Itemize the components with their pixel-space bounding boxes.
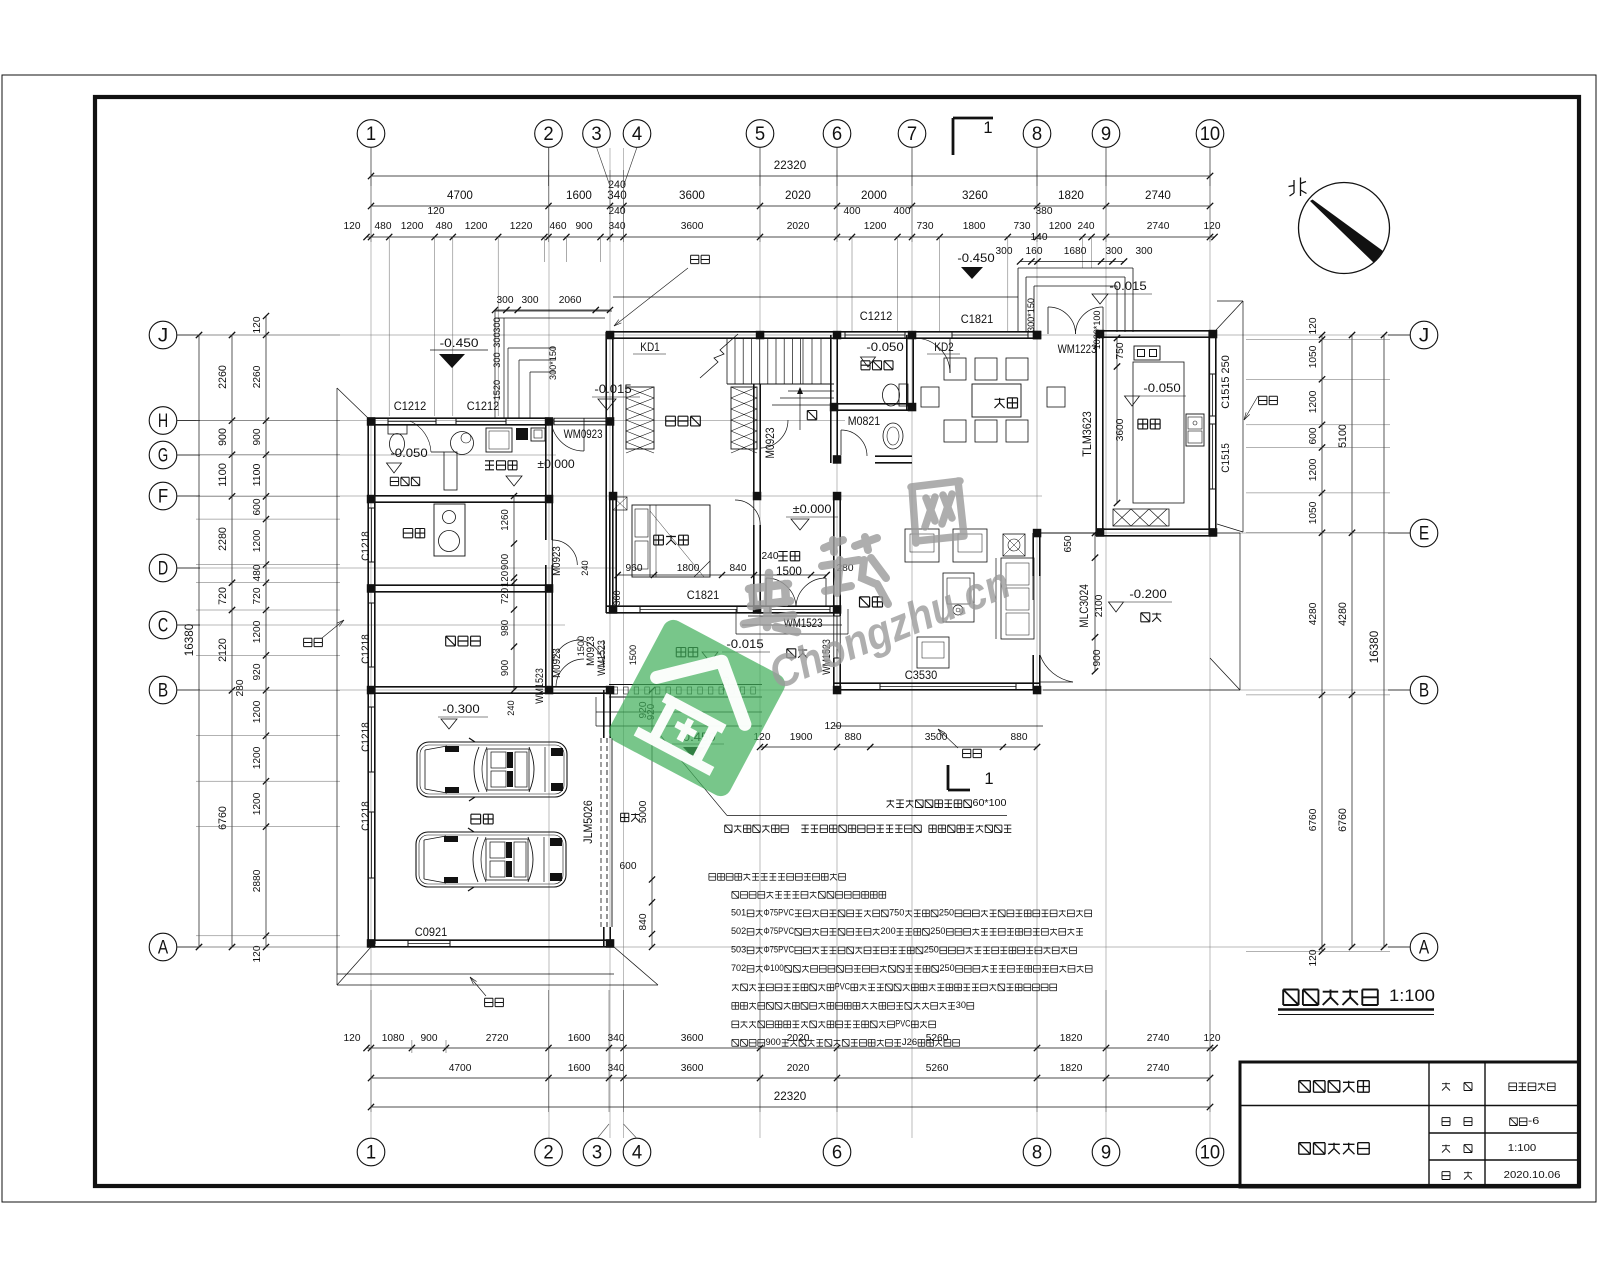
svg-text:1820: 1820 — [1060, 1032, 1083, 1044]
svg-text:60*100: 60*100 — [973, 797, 1007, 809]
svg-text:C1212: C1212 — [394, 399, 427, 413]
svg-text:300*150: 300*150 — [1026, 298, 1036, 332]
svg-text:4280: 4280 — [1337, 602, 1349, 626]
svg-text:2260: 2260 — [251, 365, 263, 388]
svg-text:840: 840 — [730, 562, 747, 574]
svg-text:C3530: C3530 — [905, 668, 938, 682]
svg-text:C1218: C1218 — [360, 634, 372, 664]
svg-text:1800: 1800 — [963, 220, 986, 232]
svg-text:5100: 5100 — [1337, 424, 1349, 448]
svg-text:4: 4 — [632, 124, 643, 145]
svg-text:WM1523: WM1523 — [596, 640, 608, 676]
svg-text:503: 503 — [731, 944, 746, 955]
svg-text:C0921: C0921 — [415, 925, 448, 939]
svg-text:1600: 1600 — [566, 188, 592, 202]
svg-text:PVC: PVC — [895, 1018, 910, 1029]
svg-text:J: J — [158, 326, 168, 347]
svg-text:C1821: C1821 — [961, 312, 994, 326]
svg-text:1: 1 — [366, 124, 376, 145]
svg-text:1680: 1680 — [1064, 245, 1087, 257]
svg-text:-0.200: -0.200 — [1129, 589, 1166, 601]
svg-text:2060: 2060 — [559, 294, 582, 306]
svg-text:2000: 2000 — [861, 188, 887, 202]
svg-text:4: 4 — [632, 1143, 643, 1164]
svg-text:16380: 16380 — [1367, 630, 1381, 663]
svg-text:240: 240 — [608, 179, 626, 191]
svg-text:2740: 2740 — [1147, 220, 1170, 232]
svg-text:120: 120 — [251, 945, 263, 962]
svg-text:22320: 22320 — [774, 1089, 807, 1103]
svg-text:340: 340 — [608, 1032, 625, 1044]
svg-text:3: 3 — [591, 124, 601, 145]
svg-text:840: 840 — [637, 913, 649, 930]
svg-text:200: 200 — [881, 925, 896, 936]
svg-text:880: 880 — [1011, 731, 1028, 743]
svg-text:702: 702 — [731, 962, 746, 973]
svg-text:E: E — [1419, 524, 1429, 545]
svg-text:C1218: C1218 — [360, 801, 372, 831]
svg-text:900: 900 — [251, 428, 263, 445]
svg-text:300: 300 — [492, 332, 503, 347]
svg-text:C1212: C1212 — [860, 309, 893, 323]
svg-text:3: 3 — [592, 1143, 602, 1164]
svg-text:±0.000: ±0.000 — [537, 459, 574, 471]
svg-text:B: B — [158, 681, 168, 702]
svg-text:1500: 1500 — [628, 645, 639, 666]
svg-text:4280: 4280 — [1307, 602, 1319, 625]
svg-text:C1515 250: C1515 250 — [1220, 355, 1232, 409]
svg-text:6: 6 — [832, 1143, 842, 1164]
svg-text:2740: 2740 — [1147, 1032, 1170, 1044]
svg-text:900: 900 — [500, 553, 511, 570]
svg-text:H: H — [158, 411, 168, 432]
svg-text:1500: 1500 — [776, 564, 802, 578]
svg-text:3600: 3600 — [681, 1032, 704, 1044]
svg-text:2880: 2880 — [251, 869, 263, 892]
svg-text:900: 900 — [766, 1036, 781, 1047]
svg-text:720: 720 — [251, 587, 263, 604]
svg-text:A: A — [158, 938, 169, 959]
svg-text:1100: 1100 — [217, 463, 229, 487]
svg-text:M0923: M0923 — [551, 648, 563, 678]
svg-text:960: 960 — [626, 562, 643, 574]
svg-text:Φ75PVC: Φ75PVC — [764, 944, 795, 955]
svg-text:1260: 1260 — [500, 509, 511, 531]
svg-text:240: 240 — [609, 205, 626, 217]
svg-text:1050: 1050 — [1307, 345, 1319, 368]
svg-text:C1218: C1218 — [360, 531, 372, 561]
svg-text:-0.450: -0.450 — [440, 336, 479, 350]
svg-text:10: 10 — [1200, 124, 1221, 145]
svg-text:KD1: KD1 — [640, 340, 660, 354]
svg-text:1200: 1200 — [401, 220, 424, 232]
svg-text:16380: 16380 — [182, 623, 196, 656]
svg-text:900: 900 — [421, 1032, 438, 1044]
svg-text:M0821: M0821 — [848, 414, 881, 428]
svg-text:2020: 2020 — [785, 188, 811, 202]
svg-text:1200: 1200 — [1307, 390, 1319, 413]
svg-text:1:100: 1:100 — [1508, 1142, 1537, 1154]
svg-text:120: 120 — [344, 1032, 361, 1044]
svg-text:4700: 4700 — [447, 188, 473, 202]
svg-text:250: 250 — [940, 962, 955, 973]
svg-text:300: 300 — [1136, 245, 1153, 257]
svg-text:KD2: KD2 — [934, 340, 954, 354]
svg-text:300: 300 — [996, 245, 1013, 257]
svg-text:D: D — [158, 559, 168, 580]
svg-text:-0.450: -0.450 — [957, 253, 994, 265]
svg-text:7: 7 — [907, 124, 917, 145]
svg-text:140: 140 — [1031, 231, 1048, 243]
svg-text:600: 600 — [251, 498, 263, 515]
svg-text:480: 480 — [436, 220, 453, 232]
svg-text:720: 720 — [500, 587, 511, 604]
svg-text:120: 120 — [1204, 220, 1221, 232]
svg-text:900: 900 — [217, 428, 229, 446]
svg-text:2020: 2020 — [787, 1062, 810, 1074]
svg-text:6760: 6760 — [217, 806, 229, 830]
svg-text:1820: 1820 — [1058, 188, 1084, 202]
svg-text:PVC: PVC — [835, 981, 850, 992]
svg-text:900: 900 — [1091, 649, 1103, 666]
svg-text:3260: 3260 — [962, 188, 988, 202]
svg-text:6760: 6760 — [1337, 808, 1349, 832]
svg-text:120: 120 — [500, 570, 511, 587]
svg-text:1200: 1200 — [1049, 220, 1072, 232]
svg-text:-0.300: -0.300 — [442, 704, 479, 716]
svg-text:1: 1 — [983, 118, 992, 137]
svg-text:250: 250 — [924, 944, 939, 955]
svg-text:-0.015: -0.015 — [726, 639, 763, 651]
svg-text:JLM5026: JLM5026 — [583, 800, 595, 844]
svg-text:1080: 1080 — [382, 1032, 405, 1044]
svg-text:300: 300 — [522, 294, 539, 306]
svg-text:-0.050: -0.050 — [866, 342, 903, 354]
svg-text:240: 240 — [1078, 220, 1095, 232]
svg-text:1200: 1200 — [1307, 458, 1319, 481]
svg-text:300: 300 — [1106, 245, 1123, 257]
svg-text:1600: 1600 — [568, 1032, 591, 1044]
svg-text:1200: 1200 — [465, 220, 488, 232]
svg-text:240: 240 — [506, 700, 517, 715]
svg-text:240: 240 — [762, 550, 779, 562]
svg-text:750: 750 — [889, 907, 904, 918]
svg-text:10: 10 — [1200, 1143, 1221, 1164]
svg-text:720: 720 — [217, 587, 229, 605]
svg-text:1020*100: 1020*100 — [1092, 311, 1102, 350]
svg-text:1200: 1200 — [251, 792, 263, 815]
svg-text:300: 300 — [492, 317, 503, 332]
svg-text:A: A — [1419, 938, 1430, 959]
svg-text:2740: 2740 — [1145, 188, 1171, 202]
svg-text:250: 250 — [930, 925, 945, 936]
svg-text:2020.10.06: 2020.10.06 — [1504, 1169, 1561, 1181]
svg-text:-0.050: -0.050 — [1143, 383, 1180, 395]
svg-text:2: 2 — [543, 124, 553, 145]
svg-text:240: 240 — [580, 560, 591, 575]
svg-text:400: 400 — [844, 205, 861, 217]
svg-text:900: 900 — [500, 659, 511, 676]
svg-text:3500: 3500 — [925, 731, 948, 743]
svg-text:-0.015: -0.015 — [1109, 281, 1146, 293]
svg-text:750: 750 — [1114, 342, 1126, 359]
svg-text:730: 730 — [1014, 220, 1031, 232]
svg-text:-0.015: -0.015 — [594, 384, 631, 396]
svg-text:-6: -6 — [1528, 1115, 1539, 1127]
svg-text:502: 502 — [731, 925, 746, 936]
svg-text:120: 120 — [251, 316, 263, 333]
svg-text:120: 120 — [1204, 1032, 1221, 1044]
svg-text:6: 6 — [832, 124, 842, 145]
svg-text:1500: 1500 — [576, 636, 587, 657]
svg-text:2120: 2120 — [217, 638, 229, 662]
svg-text:400: 400 — [894, 205, 911, 217]
svg-text:1520: 1520 — [492, 380, 503, 401]
svg-text:1200: 1200 — [251, 529, 263, 552]
svg-text:160: 160 — [1026, 245, 1043, 257]
svg-text:2: 2 — [543, 1143, 553, 1164]
svg-text:3600: 3600 — [679, 188, 705, 202]
svg-text:120: 120 — [1307, 317, 1319, 334]
svg-text:900: 900 — [576, 220, 593, 232]
svg-text:120: 120 — [344, 220, 361, 232]
svg-text:1200: 1200 — [251, 620, 263, 643]
svg-text:120: 120 — [825, 720, 842, 732]
svg-text:5: 5 — [755, 124, 765, 145]
svg-text:5260: 5260 — [926, 1062, 949, 1074]
svg-text:5000: 5000 — [637, 800, 649, 823]
svg-text:J: J — [1419, 326, 1429, 347]
svg-text:8: 8 — [1032, 1143, 1042, 1164]
svg-text:1: 1 — [366, 1143, 376, 1164]
svg-text:280: 280 — [234, 679, 246, 696]
svg-text:2720: 2720 — [486, 1032, 509, 1044]
svg-text:Φ100: Φ100 — [764, 962, 784, 973]
svg-text:WM1523: WM1523 — [534, 668, 546, 704]
svg-text:1200: 1200 — [864, 220, 887, 232]
svg-text:1:100: 1:100 — [1389, 986, 1435, 1005]
svg-text:4700: 4700 — [449, 1062, 472, 1074]
svg-text:1820: 1820 — [1060, 1062, 1083, 1074]
svg-text:3600: 3600 — [1114, 418, 1126, 441]
svg-text:1100: 1100 — [251, 463, 263, 486]
svg-text:460: 460 — [550, 220, 567, 232]
svg-text:9: 9 — [1101, 124, 1111, 145]
svg-text:120: 120 — [1307, 949, 1319, 966]
svg-text:Φ75PVC: Φ75PVC — [764, 925, 795, 936]
svg-text:2280: 2280 — [217, 527, 229, 551]
svg-text:1900: 1900 — [790, 731, 813, 743]
svg-text:1200: 1200 — [251, 746, 263, 769]
svg-text:2020: 2020 — [787, 220, 810, 232]
svg-text:M0923: M0923 — [765, 427, 777, 458]
svg-text:-0.050: -0.050 — [390, 448, 427, 460]
svg-text:1050: 1050 — [1307, 501, 1319, 524]
svg-text:880: 880 — [845, 731, 862, 743]
svg-text:300: 300 — [492, 352, 503, 367]
svg-text:C1515: C1515 — [1220, 443, 1232, 473]
svg-text:M0923: M0923 — [551, 546, 563, 576]
svg-text:C: C — [158, 616, 168, 637]
svg-text:2740: 2740 — [1147, 1062, 1170, 1074]
svg-text:Φ75PVC: Φ75PVC — [764, 907, 795, 918]
svg-text:5260: 5260 — [926, 1032, 949, 1044]
svg-text:920: 920 — [251, 663, 263, 680]
svg-text:980: 980 — [500, 619, 511, 636]
svg-text:6760: 6760 — [1307, 808, 1319, 831]
svg-text:±0.000: ±0.000 — [793, 502, 832, 516]
svg-text:480: 480 — [375, 220, 392, 232]
svg-text:340: 340 — [608, 1062, 625, 1074]
svg-text:1800: 1800 — [677, 562, 700, 574]
svg-text:9: 9 — [1101, 1143, 1111, 1164]
svg-text:250: 250 — [939, 907, 954, 918]
svg-text:340: 340 — [609, 220, 626, 232]
svg-text:1200: 1200 — [251, 700, 263, 723]
svg-text:3600: 3600 — [681, 1062, 704, 1074]
svg-text:360: 360 — [612, 590, 623, 605]
svg-text:120: 120 — [428, 205, 445, 217]
svg-text:501: 501 — [731, 907, 746, 918]
svg-text:300*150: 300*150 — [548, 346, 558, 380]
svg-text:F: F — [158, 487, 168, 508]
svg-text:1600: 1600 — [568, 1062, 591, 1074]
svg-text:600: 600 — [1307, 427, 1319, 444]
svg-text:WM0923: WM0923 — [564, 427, 603, 441]
svg-text:TLM3623: TLM3623 — [1080, 411, 1094, 457]
svg-text:650: 650 — [1062, 535, 1074, 552]
svg-text:380: 380 — [1036, 205, 1053, 217]
svg-text:B: B — [1419, 681, 1429, 702]
svg-text:8: 8 — [1032, 124, 1042, 145]
svg-text:G: G — [158, 446, 168, 467]
svg-text:1: 1 — [984, 769, 993, 788]
svg-text:1220: 1220 — [510, 220, 533, 232]
svg-text:480: 480 — [251, 564, 263, 581]
svg-text:300: 300 — [497, 294, 514, 306]
svg-text:WM1223: WM1223 — [1058, 342, 1097, 356]
svg-text:C1821: C1821 — [687, 588, 720, 602]
svg-text:30: 30 — [956, 999, 966, 1010]
svg-text:J26: J26 — [902, 1036, 917, 1047]
svg-text:2260: 2260 — [217, 365, 229, 389]
svg-text:C1218: C1218 — [360, 722, 372, 752]
svg-text:22320: 22320 — [774, 158, 807, 172]
svg-text:600: 600 — [620, 860, 637, 872]
svg-text:3600: 3600 — [681, 220, 704, 232]
svg-text:730: 730 — [917, 220, 934, 232]
svg-text:MLC3024: MLC3024 — [1079, 584, 1091, 628]
